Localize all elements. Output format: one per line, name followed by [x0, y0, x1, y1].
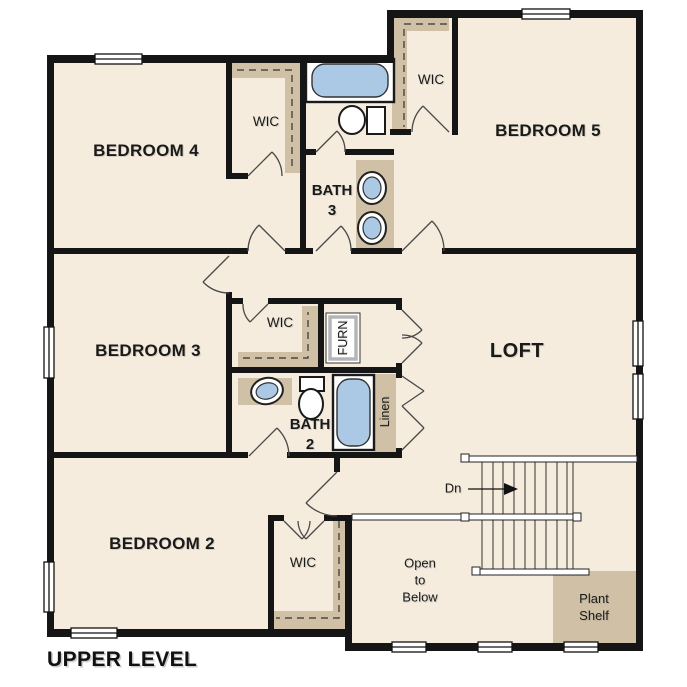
label-open-to-below: Open to Below [402, 556, 437, 607]
room-label-furnace: FURN [335, 321, 351, 356]
toilet-bowl [339, 106, 365, 134]
window [44, 327, 54, 378]
room-label-wic-bedroom3: WIC [267, 314, 293, 332]
page-title: UPPER LEVEL [47, 646, 197, 673]
room-label-bedroom2: BEDROOM 2 [109, 533, 215, 555]
window [522, 9, 570, 19]
room-label-bedroom4: BEDROOM 4 [93, 140, 199, 162]
toilet-tank [367, 107, 385, 134]
label-stairs-down: Dn [445, 481, 462, 498]
floor-plan: BEDROOM 4 BEDROOM 5 BEDROOM 3 BEDROOM 2 … [0, 0, 687, 687]
room-label-linen: Linen [377, 397, 393, 428]
room-label-bath2: BATH 2 [290, 415, 331, 456]
window [633, 321, 643, 366]
window [564, 642, 598, 652]
room-label-wic-bedroom4: WIC [253, 113, 279, 131]
window [71, 628, 117, 638]
window [95, 54, 142, 64]
room-label-loft: LOFT [490, 338, 544, 364]
window [478, 642, 512, 652]
window [392, 642, 426, 652]
room-label-bedroom5: BEDROOM 5 [495, 120, 601, 142]
window [633, 374, 643, 419]
room-label-wic-bedroom5: WIC [418, 71, 444, 89]
window [44, 562, 54, 612]
room-label-bedroom3: BEDROOM 3 [95, 340, 201, 362]
label-plant-shelf: Plant Shelf [579, 591, 609, 625]
room-label-bath3: BATH 3 [312, 181, 353, 222]
room-label-wic-bedroom2: WIC [290, 554, 316, 572]
